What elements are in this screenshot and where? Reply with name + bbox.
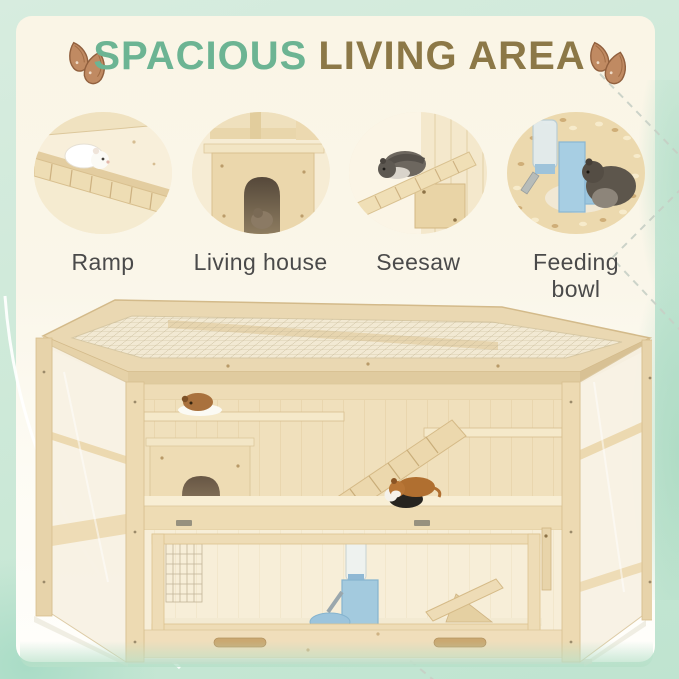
product-photo-hamster-cage	[28, 282, 652, 678]
handle-slot-left	[214, 638, 266, 647]
page-title: SPACIOUSLIVING AREA	[0, 34, 679, 79]
bottom-front-rail	[144, 630, 580, 658]
left-side-panel	[52, 346, 126, 662]
feature-seesaw: Seesaw	[348, 112, 488, 303]
cage-shadow	[128, 659, 592, 664]
title-part-spacious: SPACIOUS	[93, 34, 307, 78]
mesh-roof	[43, 300, 650, 384]
almond-seeds-icon-right	[585, 40, 633, 86]
feature-photo-ramp	[34, 112, 172, 234]
title-part-living-area: LIVING AREA	[318, 34, 585, 78]
feeding-bowl-illustration	[507, 112, 645, 234]
feature-label-seesaw: Seesaw	[348, 249, 488, 276]
right-side-panel	[580, 346, 642, 662]
feature-label-ramp: Ramp	[33, 249, 173, 276]
feature-photo-seesaw	[349, 112, 487, 234]
ramp-illustration	[34, 112, 172, 234]
seesaw-illustration	[349, 112, 487, 234]
product-infographic: SPACIOUSLIVING AREA	[0, 0, 679, 679]
feature-living-house: Living house	[191, 112, 331, 303]
bottom-level	[144, 528, 562, 634]
feature-photo-feeding-bowl	[507, 112, 645, 234]
feature-feeding-bowl: Feeding bowl	[506, 112, 646, 303]
feature-photo-living-house	[192, 112, 330, 234]
handle-slot-right	[434, 638, 486, 647]
feature-ramp: Ramp	[33, 112, 173, 303]
feature-row: Ramp	[33, 112, 646, 303]
feature-label-living-house: Living house	[191, 249, 331, 276]
living-house-illustration	[192, 112, 330, 234]
